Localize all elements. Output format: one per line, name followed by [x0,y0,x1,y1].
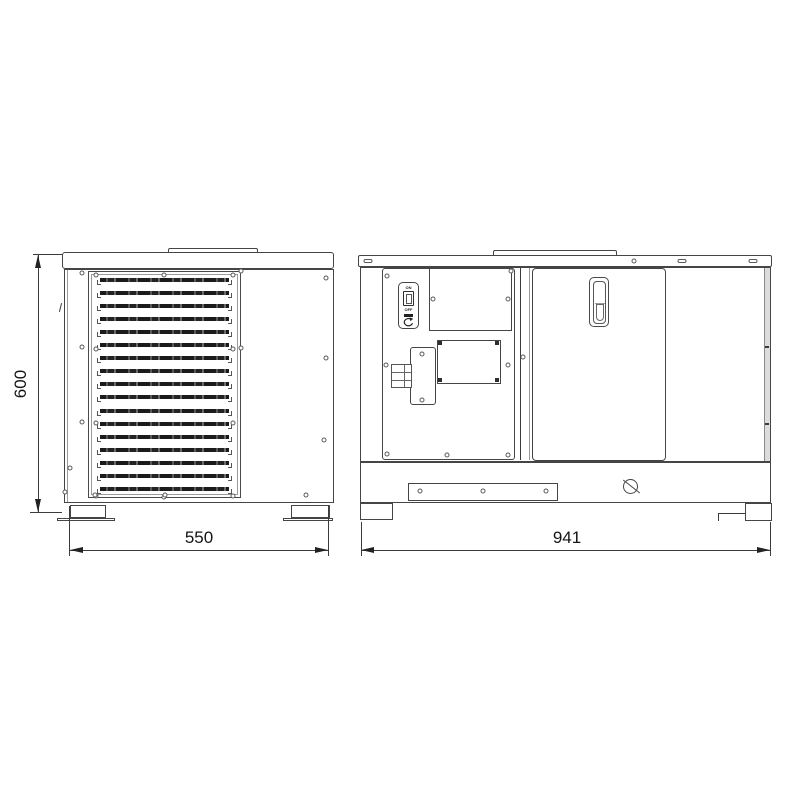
front_case-screw [322,438,327,443]
latch-screw[interactable] [623,479,638,494]
dimension-arrow [35,499,41,512]
door-handle-grip [596,304,604,321]
terminal-block [391,364,412,388]
louver-bar [100,382,229,386]
side_view-screw [509,269,514,274]
front_panel-screw [94,421,99,426]
louver-bar [100,304,229,308]
front_panel-screw [231,494,236,499]
corner-square-screw [438,378,442,382]
louver-bar [100,278,229,282]
base_bracket-screw [544,489,549,494]
electrical-box [437,340,501,384]
front_case-screw [163,493,168,498]
front_case-screw [80,345,85,350]
front_panel-screw [231,421,236,426]
front_case-screw [93,493,98,498]
front_case-screw [239,346,244,351]
front-left-foot-plate [57,518,115,521]
louver-bar [100,435,229,439]
door-handle[interactable] [589,277,609,327]
louver-bar [100,317,229,321]
front_panel-screw [94,347,99,352]
band-slot-oval [364,259,373,263]
band-slot-oval [678,259,687,263]
reset-arrow-icon [402,317,415,328]
front-top-cap [62,252,334,269]
front_case-screw [324,356,329,361]
front_panel-screw [231,347,236,352]
side_view-screw [521,355,526,360]
dimension-arrow [757,547,770,553]
side-right-foot-flange-edge [718,513,719,521]
band-slot-oval [749,259,758,263]
side_view-screw [420,398,425,403]
switch-rocker-inner [406,294,412,304]
side-left-foot [360,503,393,520]
extension-line [30,512,62,513]
louver-bar [100,422,229,426]
front_case-screw [324,276,329,281]
dimension-line [70,550,328,551]
dimension-arrow [315,547,328,553]
door-handle-recess [593,281,606,324]
front-grille-panel [88,271,241,498]
front_case-screw [80,420,85,425]
door-edge-line [529,268,530,460]
corner-square-screw [438,341,442,345]
edge-tick [765,423,769,425]
side_view-screw [506,297,511,302]
louver-bar [100,356,229,360]
side-right-foot [745,503,772,521]
louver-bar [100,395,229,399]
front-right-foot-plate [283,518,333,521]
front-right-foot [291,505,330,518]
dimension-line [361,550,770,551]
louver-bar [100,369,229,373]
side_view-screw [385,274,390,279]
louver-bar [100,487,229,491]
door-handle-line [595,303,605,304]
switch-rocker[interactable] [403,291,414,306]
extension-line [328,506,329,556]
technical-drawing-canvas: ON OFF [0,0,800,800]
front_case-screw [304,493,309,498]
grille-louvers [89,272,240,497]
base_bracket-screw [418,489,423,494]
side_view-screw [431,297,436,302]
band-slot-circle [632,259,637,264]
access-panel [429,268,512,331]
louver-bar [100,409,229,413]
switch-on-label: ON [404,286,414,290]
corner-square-screw [495,378,499,382]
side_view-screw [506,453,511,458]
edge-tick [765,346,769,348]
dimension-side-width-label: 941 [537,528,597,548]
louver-bar [100,448,229,452]
switch-off-label: OFF [404,308,414,312]
extension-line [770,522,771,556]
front_case-screw [63,490,68,495]
side_view-screw [445,453,450,458]
dimension-arrow [70,547,83,553]
louver-bar [100,330,229,334]
front_panel-screw [162,273,167,278]
power-switch[interactable]: ON OFF [398,282,419,329]
hinge-mark [59,303,62,312]
louver-bar [100,474,229,478]
front_case-screw [68,466,73,471]
side_view-screw [506,363,511,368]
louver-bar [100,461,229,465]
front_case-screw [80,271,85,276]
side_view-screw [384,363,389,368]
side_view-screw [420,352,425,357]
front_panel-screw [231,273,236,278]
front-left-foot [70,505,106,518]
dimension-height-label: 600 [11,354,31,414]
dimension-line [38,255,39,512]
side-right-edge-strip [764,268,770,461]
louver-bar [100,291,229,295]
dimension-arrow [361,547,374,553]
side-top-band [358,255,772,267]
front_case-screw [239,269,244,274]
dimension-front-width-label: 550 [169,528,229,548]
dimension-arrow [35,255,41,268]
louver-bar [100,343,229,347]
front_panel-screw [94,273,99,278]
base_bracket-screw [481,489,486,494]
corner-square-screw [495,341,499,345]
panel-divider-line [520,268,521,460]
side_view-screw [385,452,390,457]
side-right-foot-flange [718,513,745,514]
